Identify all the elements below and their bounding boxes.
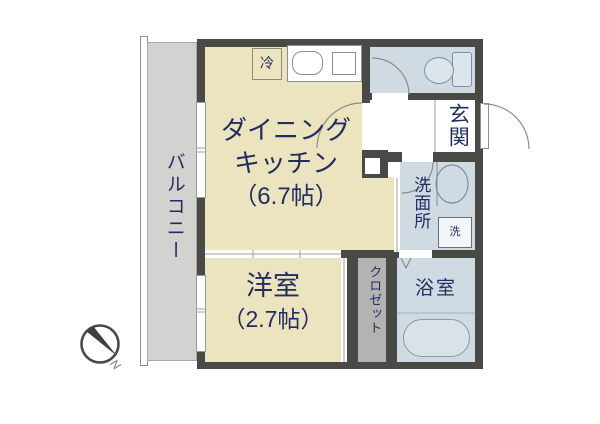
washroom-label: 洗面所 (410, 176, 431, 230)
wall-right (475, 39, 483, 369)
bathroom-door-opening (399, 250, 432, 258)
dining-kitchen-label-line1: ダイニング (210, 114, 362, 147)
toilet-door-opening (372, 93, 408, 100)
washing-machine-icon: 洗 (438, 217, 472, 248)
bathtub-icon (403, 319, 470, 357)
bathroom-label: 浴室 (397, 277, 475, 301)
compass-north-label: N (107, 357, 123, 373)
entrance-door-arc (484, 104, 529, 149)
balcony-label: バルコニー (162, 152, 186, 262)
wall-closet-left (347, 250, 358, 362)
refrigerator-icon: 冷 (252, 48, 282, 80)
closet-label: クロゼット (366, 265, 382, 335)
floor-plan: 冷 洗 (0, 0, 600, 424)
kitchen-sink-icon (292, 51, 323, 75)
toilet-bowl-icon (424, 57, 454, 84)
sliding-partition-dk-western (205, 250, 341, 258)
toilet-tank-icon (452, 52, 472, 87)
refrigerator-label: 冷 (260, 55, 274, 73)
compass-icon: N (82, 326, 124, 373)
dining-kitchen-label: ダイニング キッチン （6.7帖） (210, 114, 362, 213)
washroom-partition (394, 178, 400, 252)
dining-kitchen-size-label: （6.7帖） (210, 180, 362, 213)
washroom-door-opening (402, 152, 433, 162)
stove-icon (332, 52, 356, 75)
entrance-door-leaf (480, 103, 489, 149)
western-room-name: 洋室 (205, 270, 341, 303)
western-room-size-label: （2.7帖） (205, 303, 341, 336)
room-dining-kitchen-nook (362, 177, 394, 252)
entrance-step-notch (365, 158, 380, 174)
wall-bottom (197, 362, 483, 369)
wall-closet-right (386, 250, 397, 362)
entrance-label: 玄関 (444, 103, 470, 149)
western-room-label: 洋室 （2.7帖） (205, 270, 341, 336)
window-dining-kitchen (196, 102, 206, 198)
washing-machine-label: 洗 (450, 226, 461, 240)
closet-sliding-track (341, 258, 347, 362)
wall-dk-hall-upper (362, 39, 370, 103)
dining-kitchen-label-line2: キッチン (210, 147, 362, 180)
